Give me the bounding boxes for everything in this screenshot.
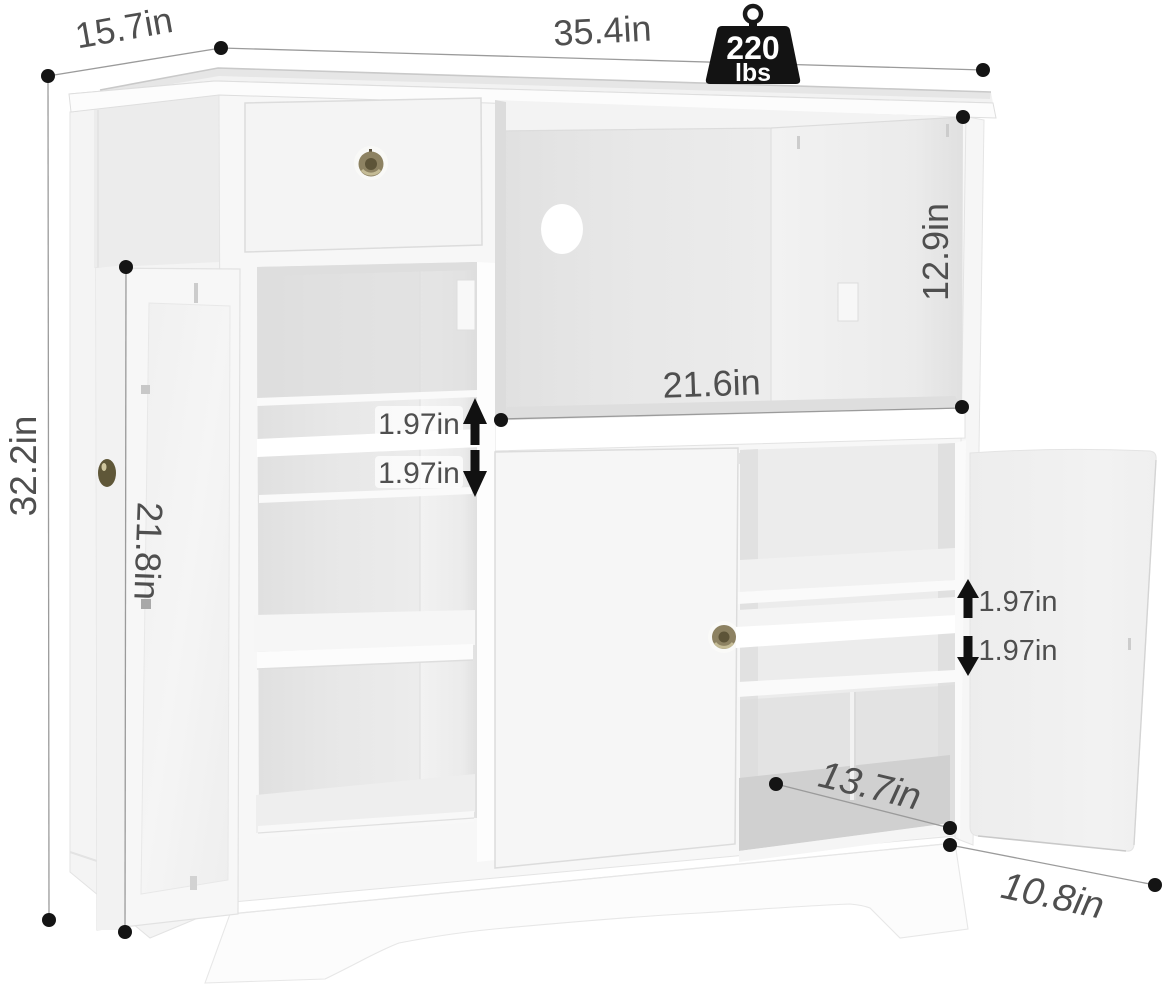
svg-text:1.97in: 1.97in	[978, 635, 1057, 667]
svg-text:1.97in: 1.97in	[378, 457, 460, 490]
svg-text:lbs: lbs	[735, 59, 771, 87]
svg-text:12.9in: 12.9in	[915, 203, 956, 301]
svg-text:32.2in: 32.2in	[3, 416, 44, 517]
svg-text:21.6in: 21.6in	[662, 361, 761, 405]
svg-text:1.97in: 1.97in	[978, 586, 1057, 618]
svg-text:21.8in: 21.8in	[126, 501, 170, 600]
svg-text:35.4in: 35.4in	[552, 7, 652, 53]
svg-text:1.97in: 1.97in	[378, 408, 460, 441]
